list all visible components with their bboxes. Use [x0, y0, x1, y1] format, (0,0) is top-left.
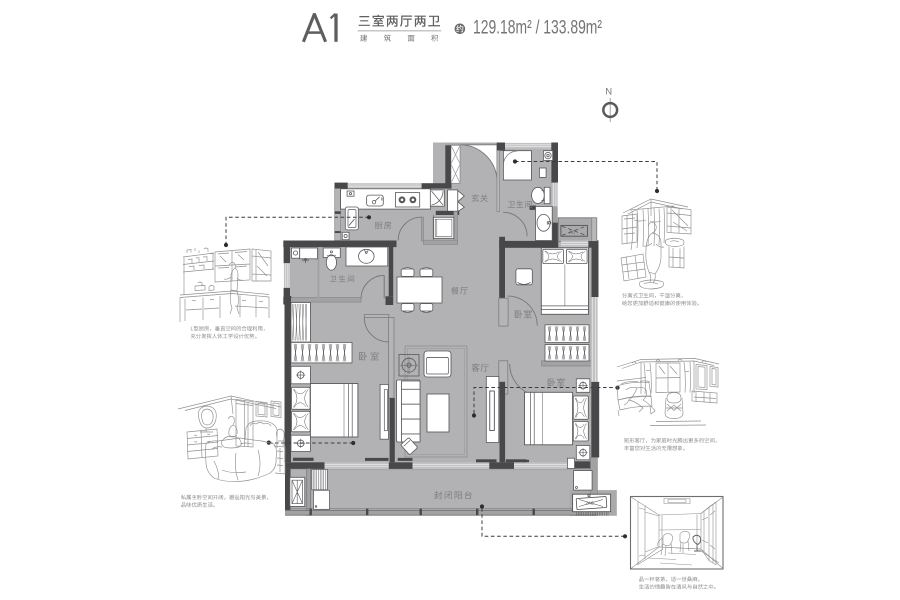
- svg-text:N: N: [605, 87, 612, 98]
- svg-text:2AC: 2AC: [586, 501, 595, 506]
- svg-text:129.18m² / 133.89m²: 129.18m² / 133.89m²: [473, 17, 602, 39]
- svg-text:AC: AC: [569, 230, 576, 235]
